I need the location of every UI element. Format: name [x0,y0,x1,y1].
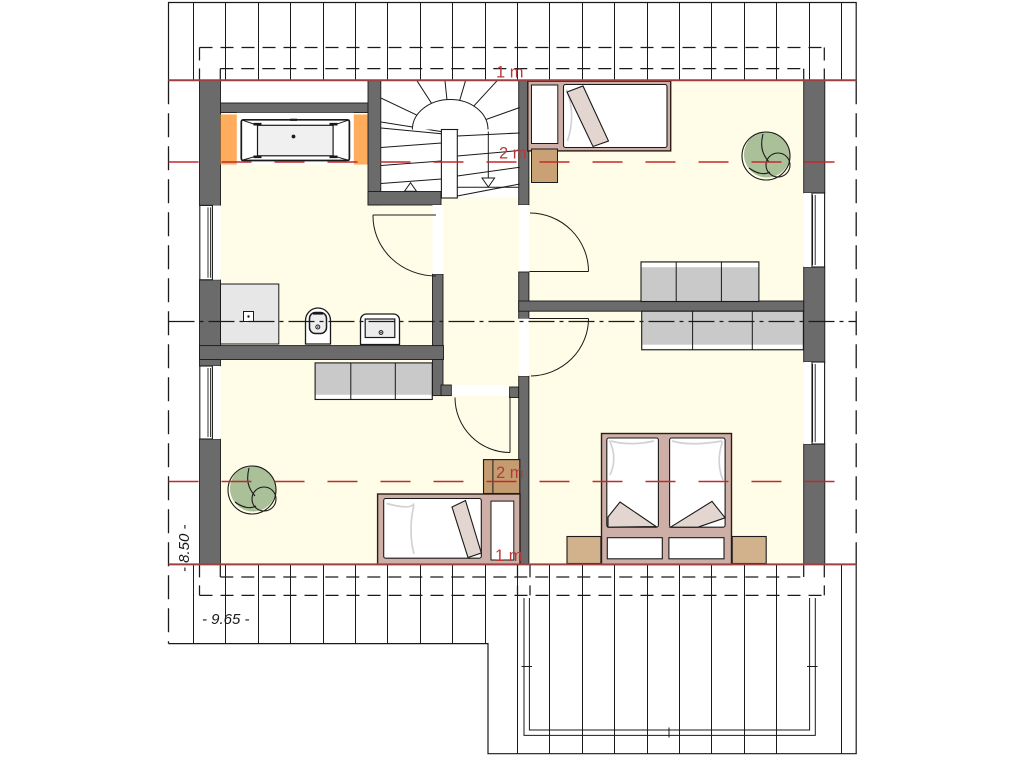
svg-text:1 m: 1 m [495,547,523,565]
svg-text:- 9.65 -: - 9.65 - [202,611,250,628]
svg-text:2 m: 2 m [496,464,524,482]
svg-text:1 m: 1 m [496,64,524,82]
svg-text:- 8.50 -: - 8.50 - [176,524,193,572]
svg-text:2 m: 2 m [499,145,527,163]
